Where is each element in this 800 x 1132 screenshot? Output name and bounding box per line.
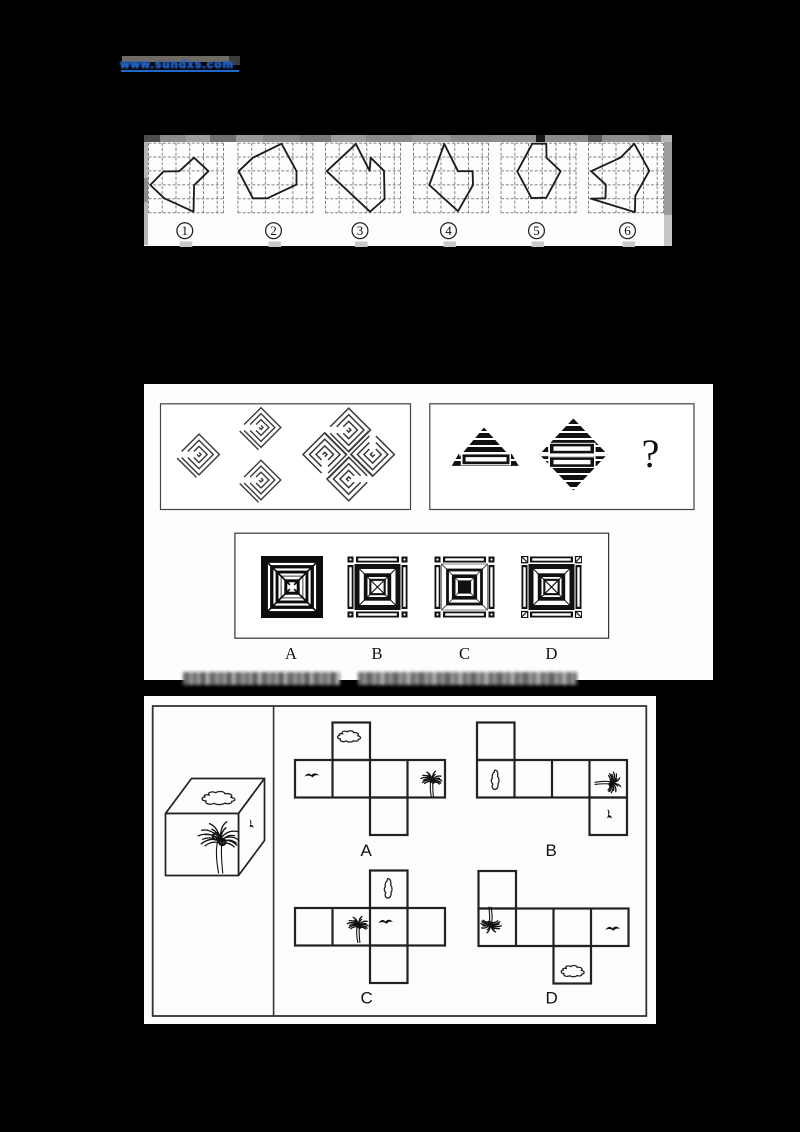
svg-text:1: 1: [181, 223, 188, 238]
svg-text:?: ?: [642, 431, 660, 476]
svg-text:A: A: [360, 841, 372, 860]
svg-text:2: 2: [270, 223, 277, 238]
svg-text:4: 4: [445, 223, 452, 238]
svg-text:3: 3: [356, 223, 363, 238]
svg-text:B: B: [545, 841, 556, 860]
svg-text:D: D: [545, 988, 557, 1007]
svg-text:6: 6: [624, 223, 631, 238]
svg-text:5: 5: [533, 223, 540, 238]
svg-text:C: C: [360, 988, 372, 1007]
